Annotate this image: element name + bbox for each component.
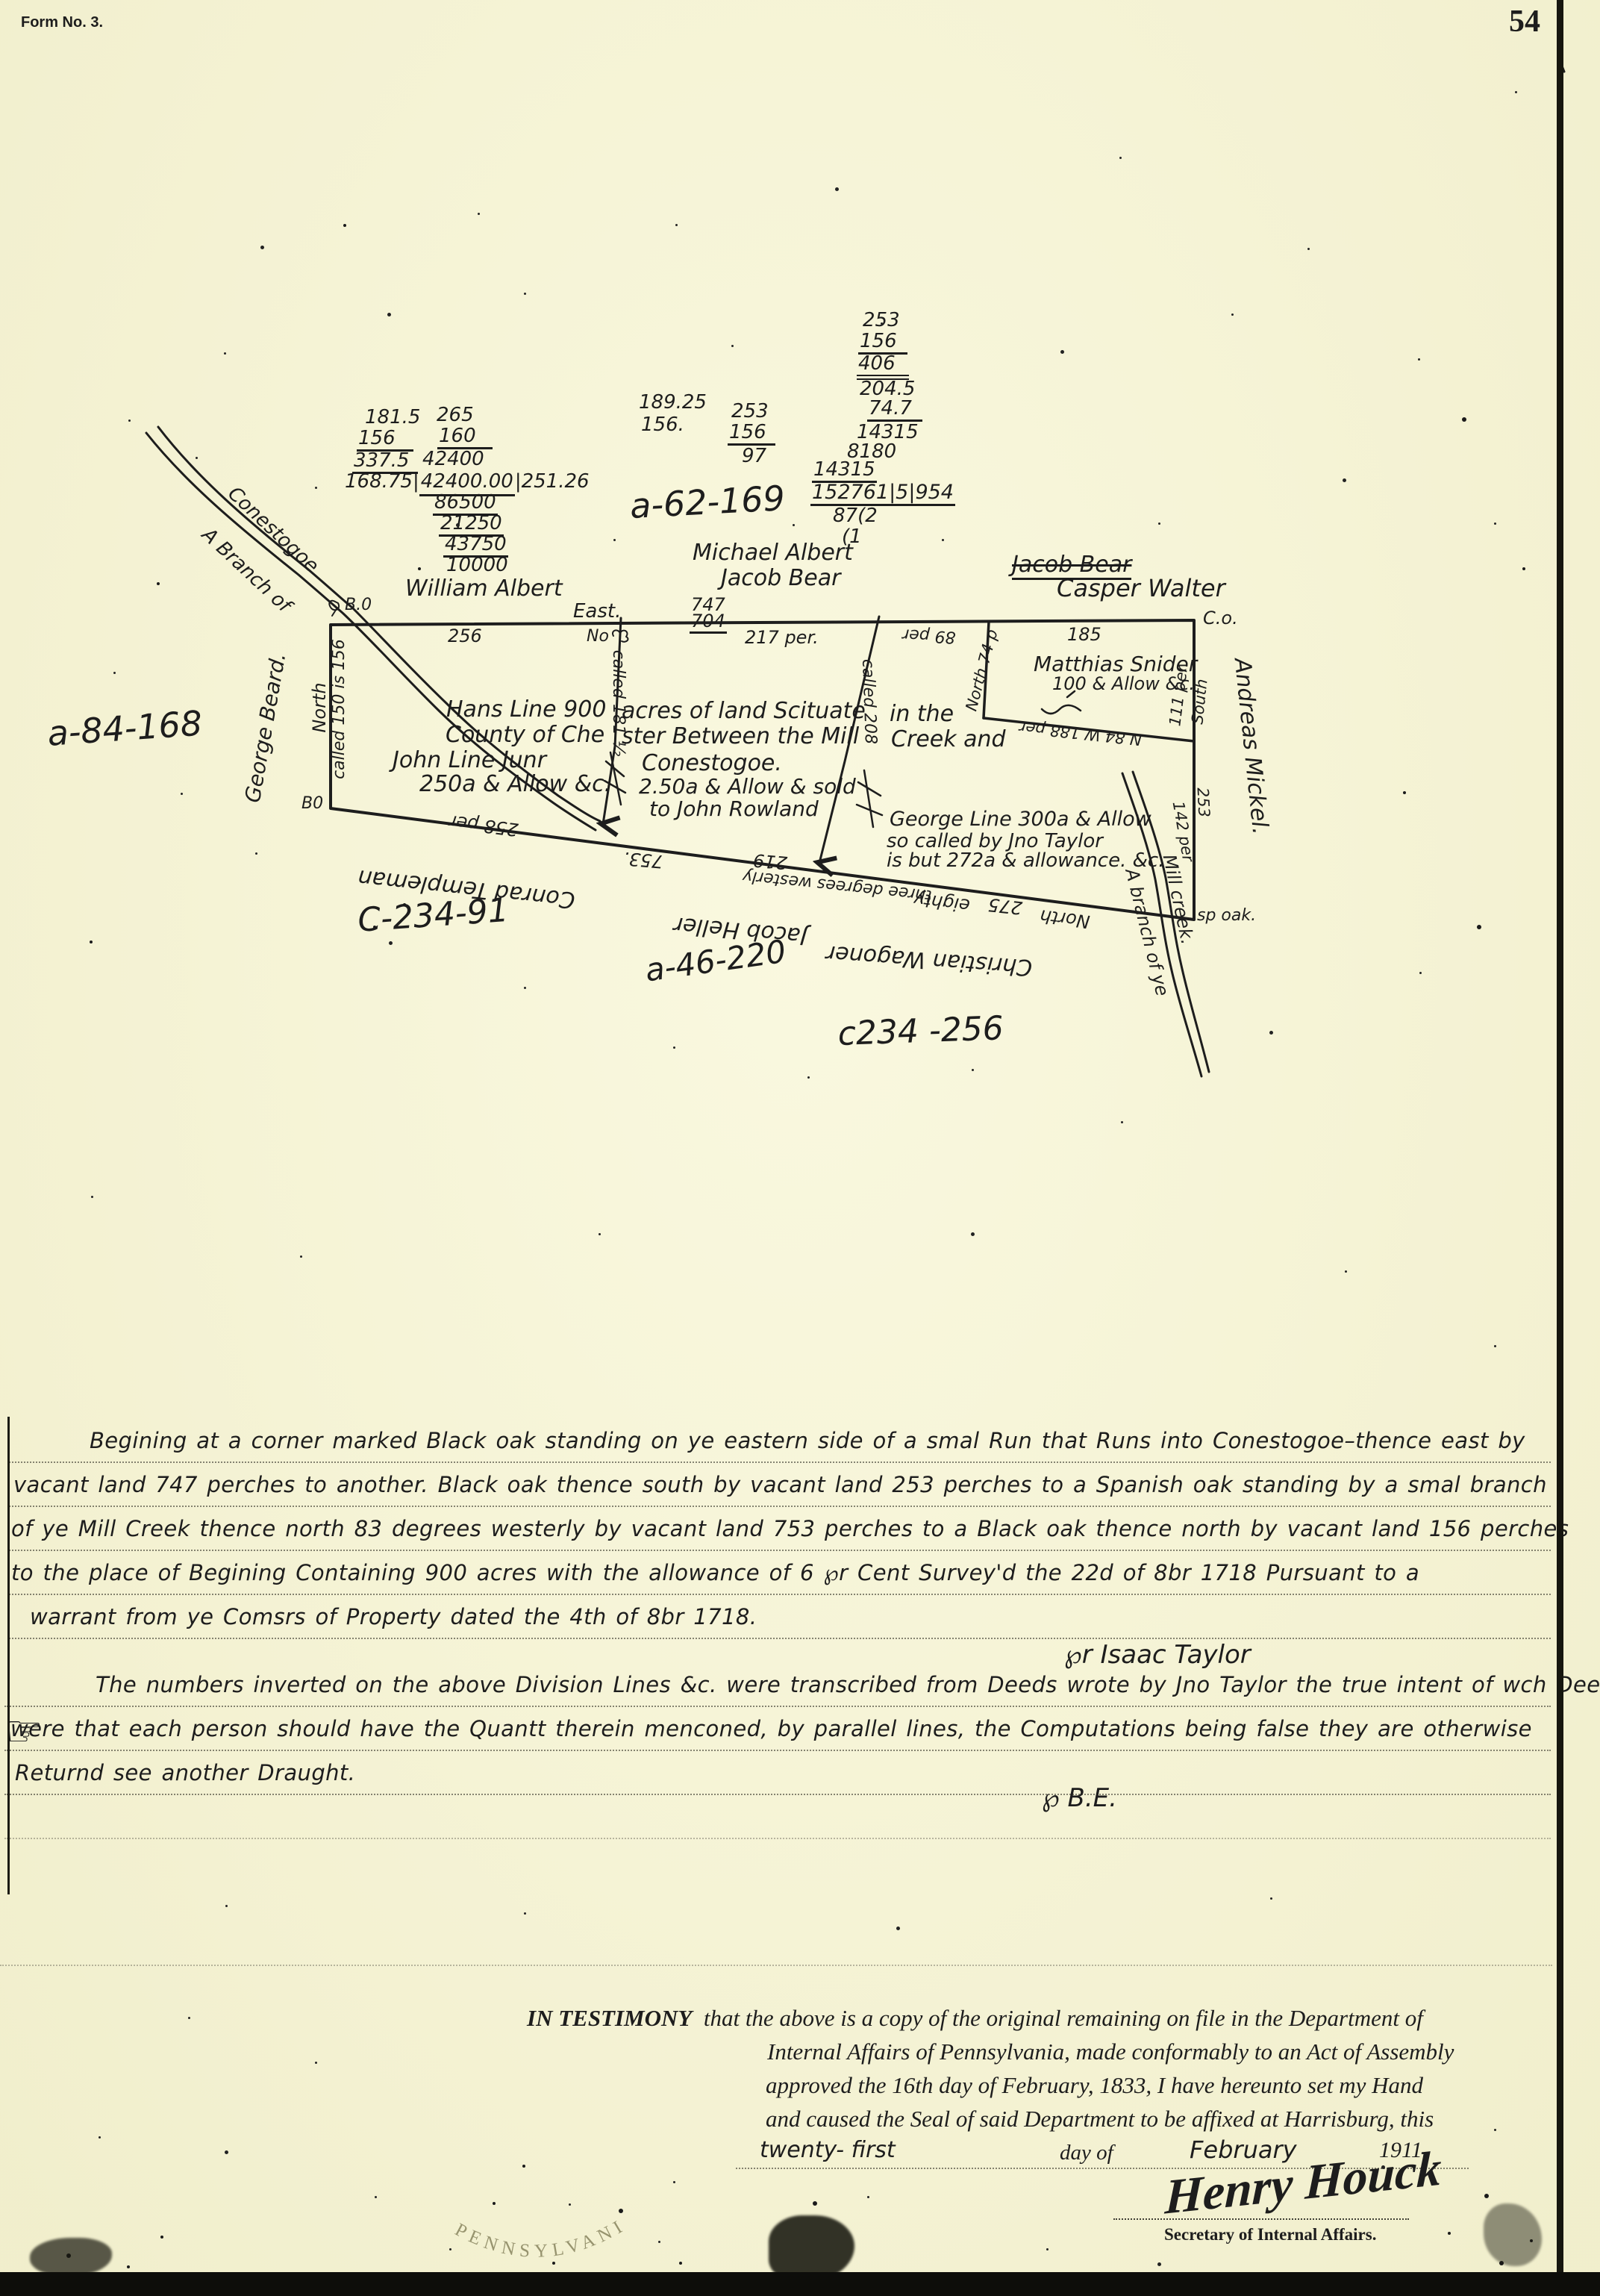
right-edge-253: 253 xyxy=(1194,787,1211,817)
calc-value: 152761|5|954 xyxy=(810,482,955,506)
calc-value: 253 xyxy=(863,311,900,330)
testimony-line: Internal Affairs of Pennsylvania, made c… xyxy=(767,2040,1454,2063)
calc-value: 42400 xyxy=(422,449,484,469)
calc-value: 181.5 xyxy=(365,408,420,427)
testimony-line: IN TESTIMONY that the above is a copy of… xyxy=(527,2006,1423,2030)
tract-text: Creek and xyxy=(891,729,1006,751)
tract-text: ster Between the Mill xyxy=(622,726,859,748)
tract-text: John Line Junr xyxy=(393,749,546,772)
owner-name-jacob-bear: Jacob Bear xyxy=(721,567,840,590)
ruled-dotted-line xyxy=(0,1965,1552,1966)
scan-bottom-strip xyxy=(0,2272,1600,2296)
ruled-dotted-line xyxy=(4,1794,1551,1795)
calc-value: 265 xyxy=(437,405,474,425)
scanned-survey-document: PENNSYLVANIA Form No. 3. 54 181.5 156 33… xyxy=(0,0,1600,2296)
calc-value: 253 xyxy=(731,402,769,421)
tract-text: Hans Line 900 xyxy=(446,699,606,721)
no-mark: No xyxy=(587,628,609,645)
calc-value: 156. xyxy=(641,415,684,434)
fill-in-day: twenty- first xyxy=(760,2139,896,2162)
survey-id-a62: a-62-169 xyxy=(629,481,786,523)
tract-text: acres of land Scituate xyxy=(622,700,866,723)
calc-value: 156 xyxy=(728,422,775,446)
corner-black-oak-bottom: B0 xyxy=(301,796,323,812)
description-line: Begining at a corner marked Black oak st… xyxy=(90,1430,1525,1452)
calc-value: 156 xyxy=(858,331,907,355)
plat-linework: PENNSYLVANIA xyxy=(0,0,1600,2296)
description-line: warrant from ye Comsrs of Property dated… xyxy=(30,1606,757,1628)
calc-value: 156 xyxy=(357,428,413,452)
description-line: The numbers inverted on the above Divisi… xyxy=(96,1674,1600,1696)
calc-value: 10000 xyxy=(446,555,508,575)
testimony-text: that the above is a copy of the original… xyxy=(704,2005,1423,2031)
ruled-dotted-line xyxy=(9,1550,1551,1551)
printed-day-of: day of xyxy=(1060,2142,1113,2164)
george-line-note: is but 272a & allowance. &c. xyxy=(887,851,1164,870)
initials-be: ℘ B.E. xyxy=(1042,1785,1117,1811)
calc-value: 204.5 xyxy=(860,379,915,399)
description-line: to the place of Begining Containing 900 … xyxy=(11,1562,1419,1584)
tract-text: Conestogoe. xyxy=(642,752,782,775)
form-number: Form No. 3. xyxy=(21,15,103,30)
edge-length-256: 256 xyxy=(448,627,482,645)
calc-value: (1 xyxy=(842,527,862,546)
george-line-note: so called by Jno Taylor xyxy=(887,832,1103,851)
tract-text: 2.50a & Allow & sold xyxy=(639,776,856,797)
snider-leader-squiggle xyxy=(1042,691,1081,714)
calc-value: 97 xyxy=(742,446,766,466)
corner-black-oak-top: B.0 xyxy=(345,597,372,614)
george-line-note: George Line 300a & Allow xyxy=(890,809,1151,829)
calc-value: 14315 xyxy=(812,460,877,483)
ruled-dotted-line xyxy=(4,1838,1551,1839)
divisor: 168.75 xyxy=(345,470,413,493)
quotient: 251.26 xyxy=(522,470,590,493)
ruled-dotted-line xyxy=(4,1750,1551,1751)
calc-value: 189.25 xyxy=(639,393,707,412)
bottom-edge-275: 275 xyxy=(987,896,1023,917)
description-line: of ye Mill Creek thence north 83 degrees… xyxy=(11,1518,1569,1540)
owner-name-casper-walter: Casper Walter xyxy=(1057,576,1225,600)
snider-allowance: 100 & Allow &c. xyxy=(1052,675,1195,693)
corner-co: C.o. xyxy=(1203,609,1238,627)
signature-title: Secretary of Internal Affairs. xyxy=(1164,2226,1376,2243)
calc-division-row: 168.75|42400.00|251.26 xyxy=(345,472,590,491)
bottom-edge-753: 753. xyxy=(622,849,663,871)
ruled-dotted-line xyxy=(9,1638,1551,1639)
calc-value: 87(2 xyxy=(833,506,878,525)
scan-noise-dots xyxy=(0,0,3,3)
in-testimony-lead: IN TESTIMONY xyxy=(527,2005,692,2031)
tract-text: in the xyxy=(890,703,954,726)
edge-length-217per: 217 per. xyxy=(745,628,819,646)
tract-text: County of Che xyxy=(446,724,604,746)
edge-length-89per: 89 per xyxy=(902,626,957,645)
surveyor-signature-taylor: ℘r Isaac Taylor xyxy=(1064,1642,1251,1668)
owner-name-matthias-snider: Matthias Snider xyxy=(1034,654,1197,675)
bearing-east: East. xyxy=(573,602,621,621)
left-margin-rule xyxy=(7,1417,10,1894)
survey-id-a84: a-84-168 xyxy=(46,706,203,751)
scan-edge-band xyxy=(1557,0,1563,2296)
ruled-dotted-line xyxy=(9,1506,1551,1507)
tract-text: 250a & Allow &c. xyxy=(419,773,611,796)
page-number: 54 xyxy=(1509,6,1540,37)
calc-value: 14315 xyxy=(857,422,919,442)
owner-name-william-albert: William Albert xyxy=(405,578,563,600)
left-edge-called: called 150 is 156 xyxy=(331,639,348,779)
seal-arc-text: PENNSYLVANIA xyxy=(0,0,630,2262)
corner-spanish-oak: sp oak. xyxy=(1197,908,1256,924)
ruled-dotted-line xyxy=(9,1594,1551,1595)
signature-rule xyxy=(1113,2218,1409,2220)
owner-name-michael-albert: Michael Albert xyxy=(693,542,853,564)
survey-id-c234-256: c234 -256 xyxy=(837,1012,1004,1051)
calc-value: 160 xyxy=(437,426,493,449)
testimony-line: approved the 16th day of February, 1833,… xyxy=(766,2074,1423,2097)
ruled-dotted-line xyxy=(9,1461,1551,1463)
ruled-dotted-line xyxy=(4,1706,1551,1707)
calc-value: 406 xyxy=(857,354,909,380)
struck-scribble-2 xyxy=(857,770,882,827)
left-edge-north: North xyxy=(310,682,328,732)
tract-text: to John Rowland xyxy=(649,799,819,820)
bottom-edge-north: North xyxy=(1039,907,1091,931)
calc-value: 74.7 xyxy=(867,399,922,422)
description-line: Returnd see another Draught. xyxy=(15,1762,355,1784)
description-line: vacant land 747 perches to another. Blac… xyxy=(13,1474,1547,1496)
edge-length-704: 704 xyxy=(690,612,727,634)
edge-length-185: 185 xyxy=(1067,626,1101,643)
testimony-line: and caused the Seal of said Department t… xyxy=(766,2107,1434,2130)
description-line: were that each person should have the Qu… xyxy=(10,1718,1532,1740)
